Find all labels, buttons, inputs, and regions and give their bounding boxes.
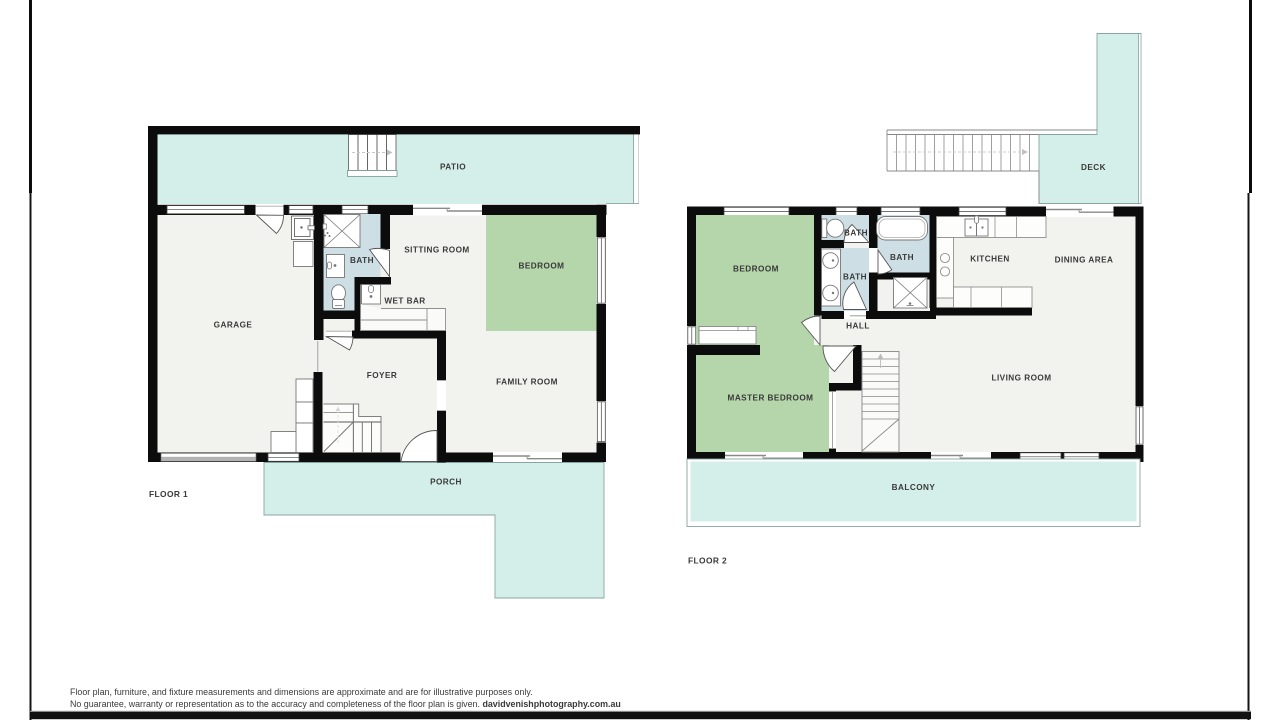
svg-text:LIVING ROOM: LIVING ROOM — [992, 374, 1052, 383]
svg-text:MASTER BEDROOM: MASTER BEDROOM — [728, 394, 814, 403]
svg-text:FAMILY ROOM: FAMILY ROOM — [496, 378, 558, 387]
svg-text:BEDROOM: BEDROOM — [733, 265, 779, 274]
svg-text:GARAGE: GARAGE — [214, 321, 253, 330]
svg-text:DECK: DECK — [1081, 163, 1106, 172]
svg-text:BATH: BATH — [350, 256, 374, 265]
svg-text:PORCH: PORCH — [430, 478, 462, 487]
svg-text:DINING AREA: DINING AREA — [1055, 256, 1114, 265]
svg-text:BATH: BATH — [843, 273, 867, 282]
svg-text:No guarantee, warranty or repr: No guarantee, warranty or representation… — [70, 699, 621, 709]
svg-text:BATH: BATH — [844, 229, 868, 238]
svg-text:Floor plan, furniture, and fix: Floor plan, furniture, and fixture measu… — [70, 687, 533, 697]
svg-text:BEDROOM: BEDROOM — [519, 262, 565, 271]
svg-text:BATH: BATH — [890, 253, 914, 262]
svg-text:KITCHEN: KITCHEN — [970, 255, 1010, 264]
svg-text:FLOOR 2: FLOOR 2 — [688, 556, 727, 566]
svg-text:FOYER: FOYER — [367, 371, 397, 380]
svg-text:SITTING ROOM: SITTING ROOM — [404, 246, 469, 255]
svg-text:HALL: HALL — [846, 322, 870, 331]
svg-text:BALCONY: BALCONY — [892, 483, 936, 492]
svg-text:PATIO: PATIO — [440, 163, 466, 172]
svg-text:WET BAR: WET BAR — [384, 297, 425, 306]
svg-text:FLOOR 1: FLOOR 1 — [149, 489, 188, 499]
